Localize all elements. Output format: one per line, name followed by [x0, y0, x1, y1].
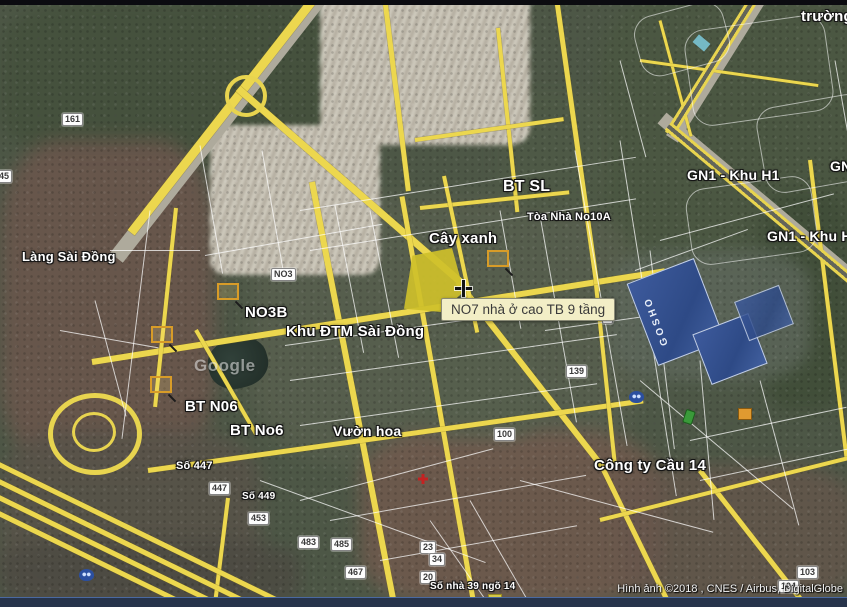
area-label-so-nha-39: Số nhà 39 ngõ 14	[430, 581, 515, 592]
area-label-toa-nha-no10a: Tòa Nhà No10A	[527, 211, 611, 223]
parcel-number-pill: 467	[345, 566, 366, 579]
parcel-flag-icon[interactable]	[217, 283, 239, 300]
crosshair-icon	[455, 280, 472, 297]
parcel-flag-icon[interactable]	[151, 326, 173, 343]
parcel-number-pill: 453	[248, 512, 269, 525]
map-canvas[interactable]: GOSHO trườngLàng Sài ĐồngNO3BKhu ĐTM Sài…	[0, 0, 847, 607]
area-label-gn-cut: GN	[830, 158, 847, 174]
area-label-so-447: Số 447	[176, 460, 213, 472]
parcel-flag-icon[interactable]	[487, 250, 509, 267]
sat-patch	[210, 125, 380, 275]
area-label-lang-sai-dong: Làng Sài Đồng	[22, 249, 116, 264]
interchange-inner-ring	[72, 412, 116, 452]
parcel-number-pill: 485	[331, 538, 352, 551]
area-label-bt-n06: BT N06	[185, 398, 238, 415]
parcel-number-pill: 45	[0, 170, 12, 183]
parcel-number-pill: 161	[62, 113, 83, 126]
parcel-line	[110, 250, 200, 251]
map-tooltip: NO7 nhà ở cao TB 9 tầng	[441, 298, 615, 321]
area-label-so-449: Số 449	[242, 491, 275, 502]
orange-poi-icon[interactable]	[738, 408, 752, 420]
roundabout	[225, 75, 267, 117]
area-label-bt-sl: BT SL	[503, 178, 550, 196]
window-bottom-border	[0, 597, 847, 607]
area-label-gn1-khu-h1: GN1 - Khu H1	[687, 167, 780, 183]
tooltip-text: NO7 nhà ở cao TB 9 tầng	[451, 302, 605, 317]
parcel-number-pill: 100	[494, 428, 515, 441]
parcel-number-pill: 139	[566, 365, 587, 378]
area-label-cong-ty-cau-14: Công ty Cầu 14	[594, 457, 706, 474]
area-label-no3b: NO3B	[245, 304, 287, 321]
blue-poi-icon[interactable]	[79, 569, 94, 581]
blue-poi-icon[interactable]	[629, 391, 644, 403]
area-label-bt-no6: BT No6	[230, 422, 284, 439]
parcel-number-pill: 447	[209, 482, 230, 495]
parcel-number-pill: NO3	[271, 268, 296, 281]
parcel-number-pill: 483	[298, 536, 319, 549]
area-label-truong: trường	[801, 8, 847, 25]
area-label-gn1-khu-h6: GN1 - Khu H6	[767, 228, 847, 244]
map-window: GOSHO trườngLàng Sài ĐồngNO3BKhu ĐTM Sài…	[0, 0, 847, 607]
sat-patch	[320, 0, 530, 145]
parcel-flag-icon[interactable]	[150, 376, 172, 393]
area-label-vuon-hoa: Vườn hoa	[333, 423, 401, 439]
parcel-number-pill: 103	[797, 566, 818, 579]
window-top-border	[0, 0, 847, 5]
google-watermark: Google	[194, 356, 256, 376]
imagery-attribution: Hình ảnh ©2018 , CNES / Airbus, DigitalG…	[617, 583, 843, 595]
area-label-khu-dtm: Khu ĐTM Sài Đồng	[286, 323, 424, 340]
green-poi-icon[interactable]	[682, 409, 696, 425]
area-label-cay-xanh: Cây xanh	[429, 230, 497, 247]
parcel-number-pill: 34	[429, 553, 445, 566]
